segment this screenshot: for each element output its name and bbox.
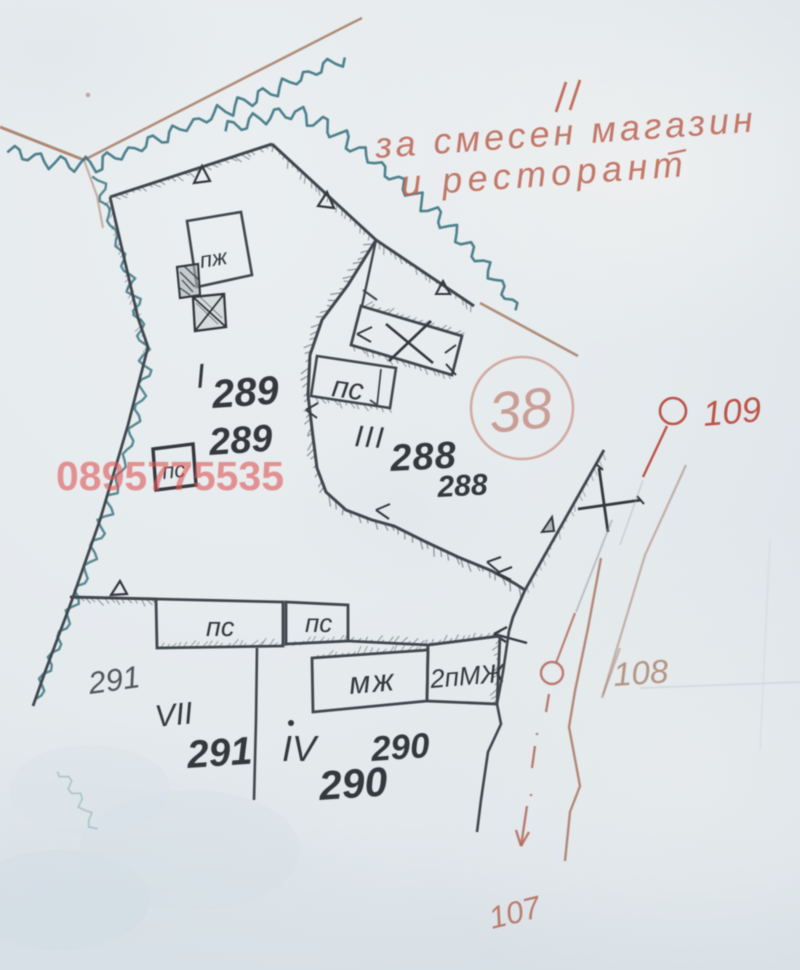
svg-text:пс: пс (206, 612, 235, 642)
svg-text:III: III (354, 420, 387, 455)
svg-text:290: 290 (316, 758, 389, 809)
svg-text:288: 288 (436, 468, 489, 504)
svg-text:пс: пс (305, 608, 332, 638)
svg-text:291: 291 (85, 659, 142, 701)
svg-text:пс: пс (330, 370, 366, 407)
svg-text:0895775535: 0895775535 (56, 453, 284, 499)
svg-text:291: 291 (185, 730, 254, 778)
svg-text:108: 108 (612, 652, 670, 693)
svg-text:38: 38 (486, 376, 556, 446)
svg-text:пж: пж (198, 244, 230, 273)
svg-text:IV: IV (282, 728, 319, 769)
svg-text:289: 289 (210, 368, 281, 417)
svg-text:VII: VII (153, 695, 195, 734)
svg-text:109: 109 (701, 390, 763, 434)
svg-text:мж: мж (348, 662, 397, 701)
